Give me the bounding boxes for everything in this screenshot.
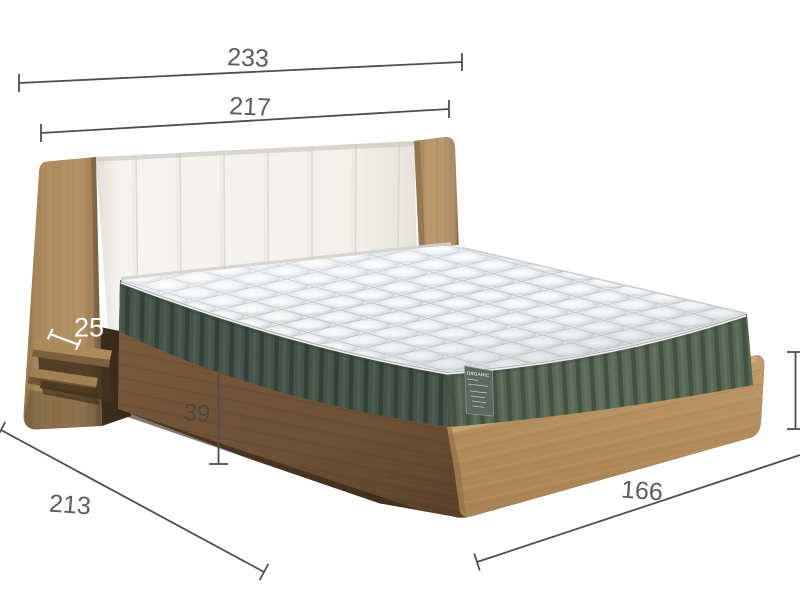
svg-text:25: 25	[74, 313, 104, 343]
svg-text:217: 217	[229, 92, 272, 122]
svg-text:166: 166	[620, 476, 664, 507]
svg-text:213: 213	[48, 490, 92, 521]
svg-text:233: 233	[227, 43, 270, 73]
svg-text:39: 39	[183, 399, 212, 428]
